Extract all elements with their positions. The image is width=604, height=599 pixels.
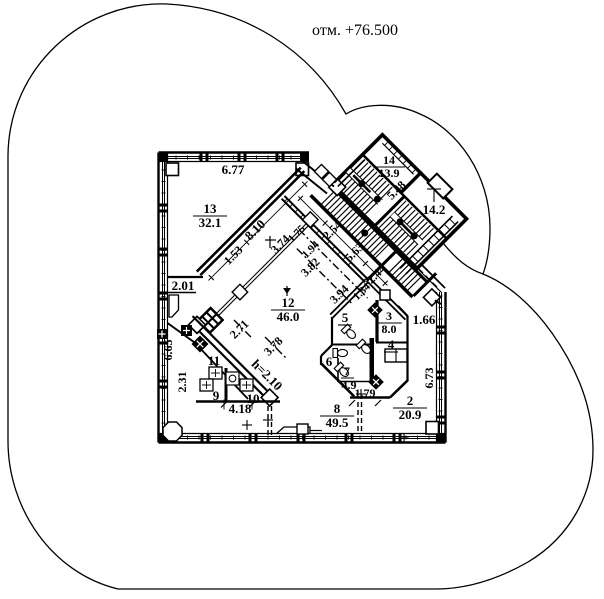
svg-text:4: 4	[388, 337, 395, 352]
svg-text:4.18: 4.18	[229, 401, 252, 416]
svg-text:49.5: 49.5	[326, 415, 349, 430]
svg-text:32.1: 32.1	[199, 215, 222, 230]
svg-text:8: 8	[334, 401, 341, 416]
svg-text:1.66: 1.66	[413, 312, 436, 327]
svg-text:13.9: 13.9	[379, 166, 400, 180]
svg-text:46.0: 46.0	[277, 309, 300, 324]
svg-text:3: 3	[386, 309, 392, 323]
svg-text:2.31: 2.31	[175, 372, 189, 393]
svg-text:20.9: 20.9	[399, 407, 422, 422]
svg-text:12: 12	[282, 295, 295, 310]
svg-text:отм. +76.500: отм. +76.500	[312, 22, 398, 39]
svg-text:6.73: 6.73	[422, 368, 436, 389]
svg-text:2.01: 2.01	[172, 278, 195, 293]
svg-text:14.2: 14.2	[423, 202, 446, 217]
svg-text:7: 7	[344, 364, 350, 378]
svg-text:2: 2	[407, 393, 414, 408]
svg-text:6.77: 6.77	[222, 162, 245, 177]
svg-text:6.65: 6.65	[161, 340, 175, 361]
svg-text:6: 6	[326, 354, 333, 369]
svg-text:5: 5	[342, 310, 349, 325]
svg-text:13: 13	[204, 201, 218, 216]
svg-text:14: 14	[383, 153, 395, 167]
svg-text:9: 9	[213, 388, 220, 403]
svg-text:1.79: 1.79	[355, 386, 376, 400]
svg-text:11: 11	[208, 353, 220, 368]
svg-text:8.0: 8.0	[382, 322, 397, 336]
